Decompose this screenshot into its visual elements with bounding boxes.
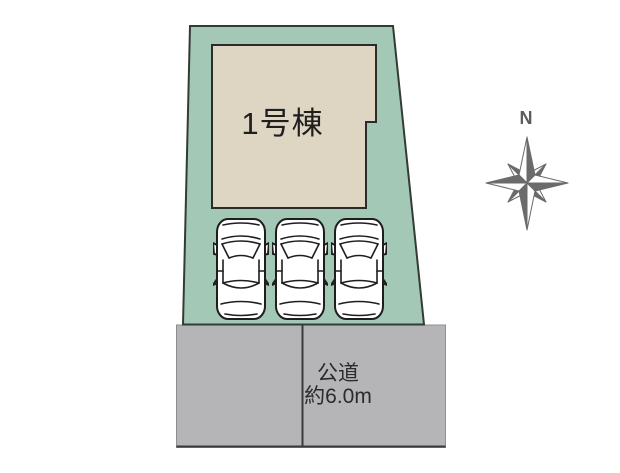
building-label: 1号棟 xyxy=(212,107,353,141)
road-label: 公道 約6.0m xyxy=(268,362,408,408)
car-icon xyxy=(213,219,269,319)
car-icon xyxy=(272,219,328,319)
road-label-line2: 約6.0m xyxy=(268,385,408,408)
parking-area xyxy=(213,219,387,319)
road-label-line1: 公道 xyxy=(268,362,408,385)
site-plan: 1号棟 公道 約6.0m N xyxy=(0,0,620,473)
car-icon xyxy=(331,219,387,319)
compass-north-label: N xyxy=(505,109,547,127)
compass-rose-icon xyxy=(486,137,568,230)
